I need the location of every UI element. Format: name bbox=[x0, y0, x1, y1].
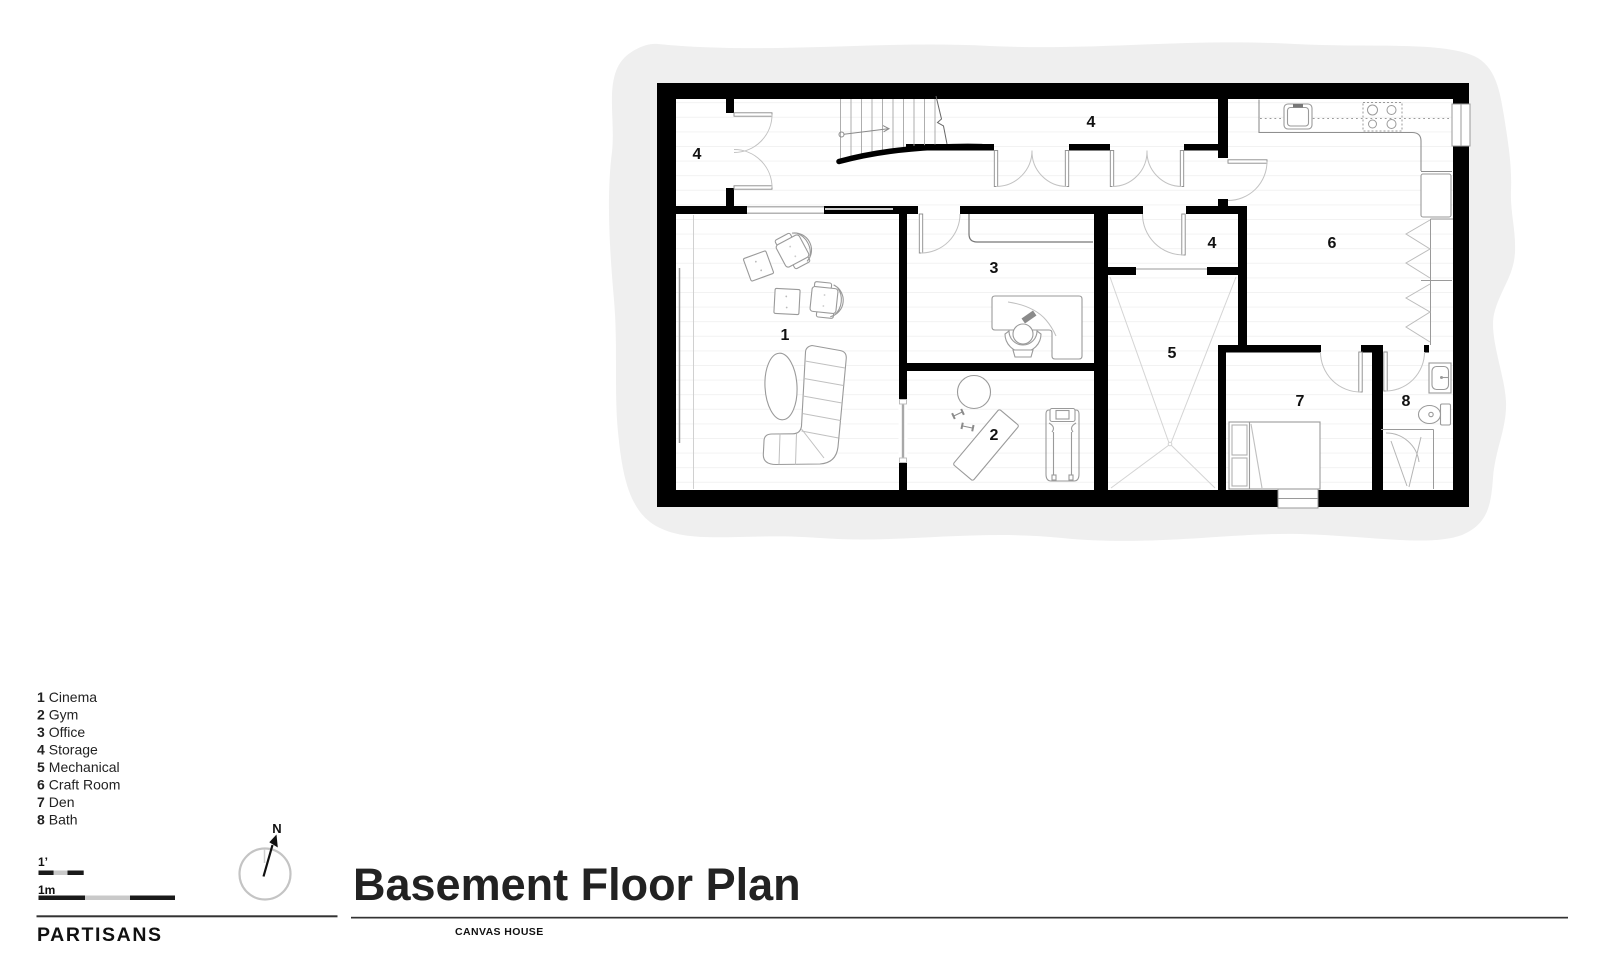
svg-text:8Bath: 8Bath bbox=[37, 812, 78, 828]
svg-text:8: 8 bbox=[1402, 393, 1411, 410]
svg-text:Basement Floor Plan: Basement Floor Plan bbox=[353, 859, 801, 910]
svg-text:1m: 1m bbox=[38, 883, 55, 897]
svg-text:4: 4 bbox=[693, 146, 702, 163]
svg-text:4: 4 bbox=[1208, 235, 1217, 252]
svg-text:6: 6 bbox=[1328, 235, 1337, 252]
svg-text:6Craft Room: 6Craft Room bbox=[37, 777, 120, 793]
svg-text:3Office: 3Office bbox=[37, 724, 85, 740]
svg-text:5: 5 bbox=[1168, 345, 1177, 362]
svg-text:5Mechanical: 5Mechanical bbox=[37, 759, 120, 775]
svg-text:1Cinema: 1Cinema bbox=[37, 689, 97, 705]
svg-text:CANVAS HOUSE: CANVAS HOUSE bbox=[455, 926, 544, 938]
svg-text:1: 1 bbox=[781, 327, 790, 344]
svg-text:1’: 1’ bbox=[38, 855, 48, 869]
svg-text:7Den: 7Den bbox=[37, 794, 74, 810]
svg-text:3: 3 bbox=[990, 260, 999, 277]
svg-text:PARTISANS: PARTISANS bbox=[37, 924, 163, 946]
svg-text:N: N bbox=[272, 821, 281, 836]
svg-text:7: 7 bbox=[1296, 393, 1305, 410]
svg-text:4Storage: 4Storage bbox=[37, 742, 98, 758]
svg-text:2: 2 bbox=[990, 427, 999, 444]
svg-text:4: 4 bbox=[1087, 114, 1096, 131]
svg-text:2Gym: 2Gym bbox=[37, 707, 78, 723]
